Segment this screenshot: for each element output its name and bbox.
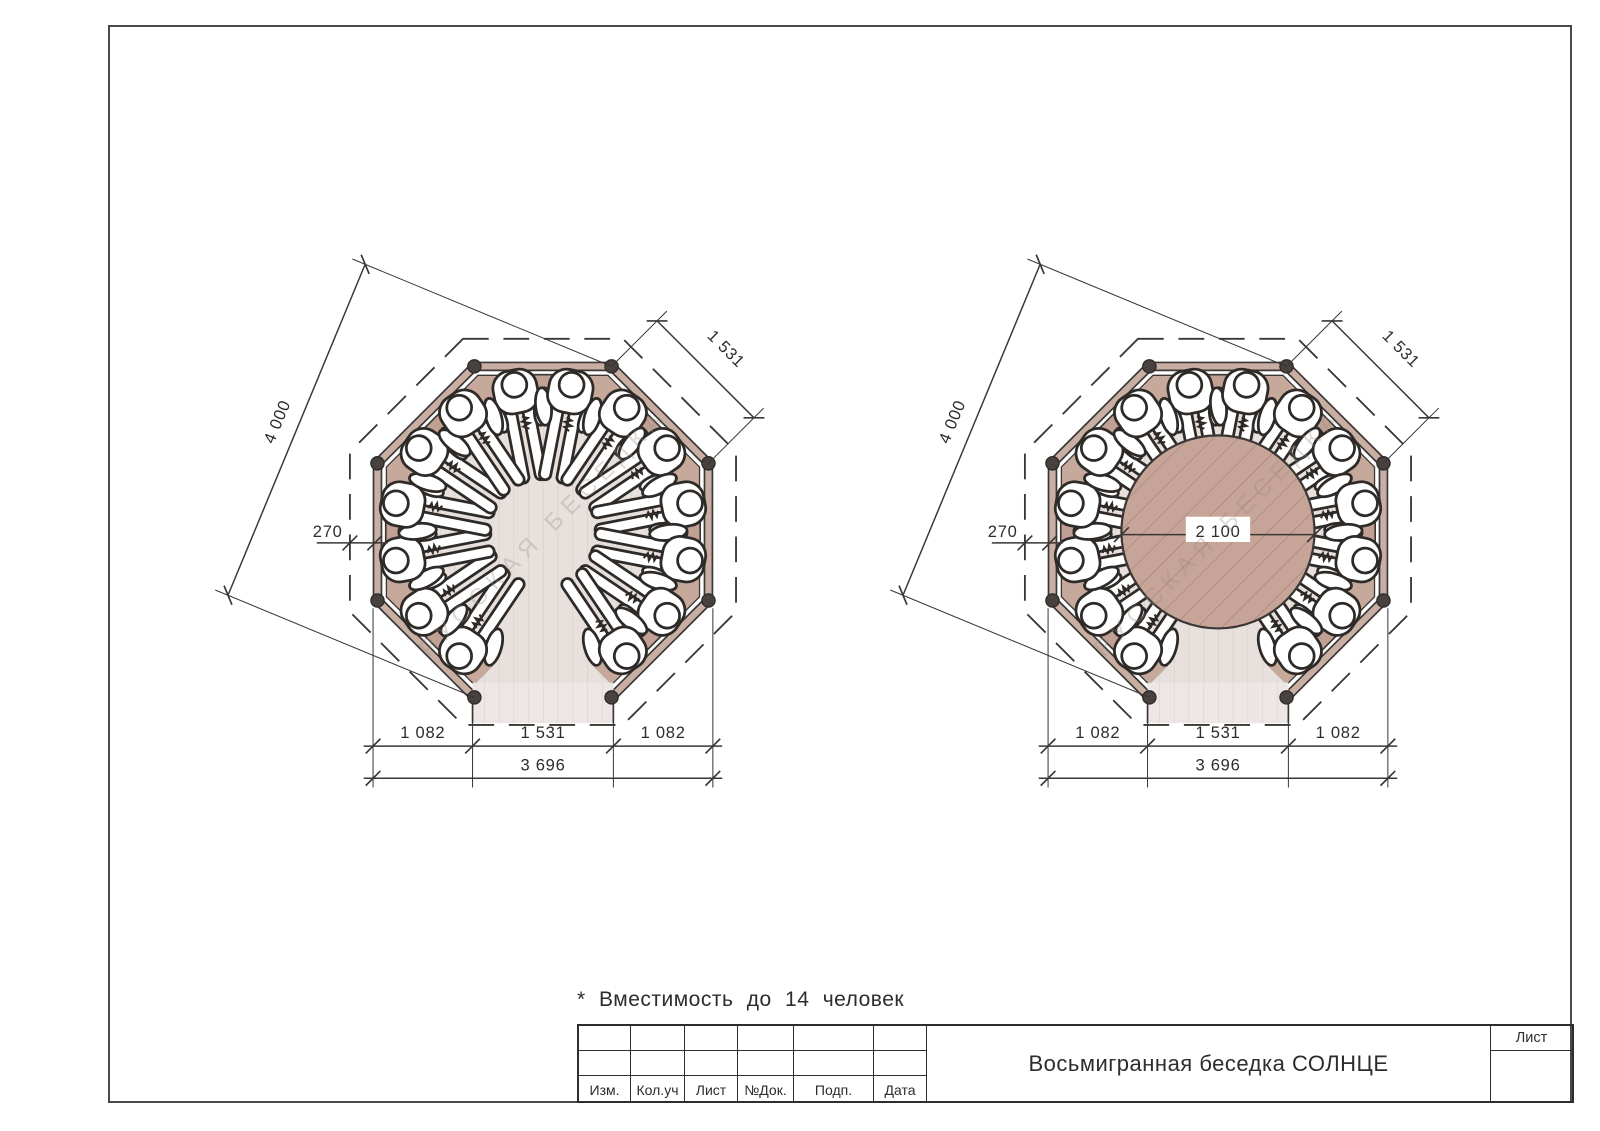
revision-header-podp: Подп.	[794, 1076, 874, 1101]
revision-header-dok: №Док.	[738, 1076, 794, 1101]
floor-plan-with-table: 2 100 РУССКАЯ БЕСЕДКА	[887, 233, 1457, 794]
capacity-note: * Вместимость до 14 человек	[577, 988, 904, 1012]
revision-header-izm: Изм.	[579, 1076, 631, 1101]
sheet-number-column: Лист	[1491, 1026, 1572, 1101]
revision-cell	[631, 1051, 685, 1076]
revision-cell	[794, 1051, 874, 1076]
sheet-number-label: Лист	[1491, 1026, 1572, 1051]
revision-cell	[685, 1051, 738, 1076]
revision-cell	[685, 1026, 738, 1051]
revision-cell	[874, 1051, 926, 1076]
revision-table: Изм. Кол.уч Лист №Док. Подп. Дата	[579, 1026, 927, 1101]
drawing-title: Восьмигранная беседка СОЛНЦЕ	[927, 1026, 1491, 1101]
revision-cell	[579, 1026, 631, 1051]
revision-cell	[794, 1026, 874, 1051]
revision-cell	[579, 1051, 631, 1076]
revision-header-data: Дата	[874, 1076, 926, 1101]
revision-cell	[631, 1026, 685, 1051]
floor-plan-open-center: РУССКАЯ БЕСЕДКА	[212, 233, 782, 794]
revision-header-list: Лист	[685, 1076, 738, 1101]
revision-cell	[874, 1026, 926, 1051]
drawing-sheet: 1 082 1 531 1 082 3 696 270	[0, 0, 1600, 1131]
revision-header-koluch: Кол.уч	[631, 1076, 685, 1101]
revision-cell	[738, 1051, 794, 1076]
revision-cell	[738, 1026, 794, 1051]
title-block: Изм. Кол.уч Лист №Док. Подп. Дата Восьми…	[577, 1024, 1574, 1103]
